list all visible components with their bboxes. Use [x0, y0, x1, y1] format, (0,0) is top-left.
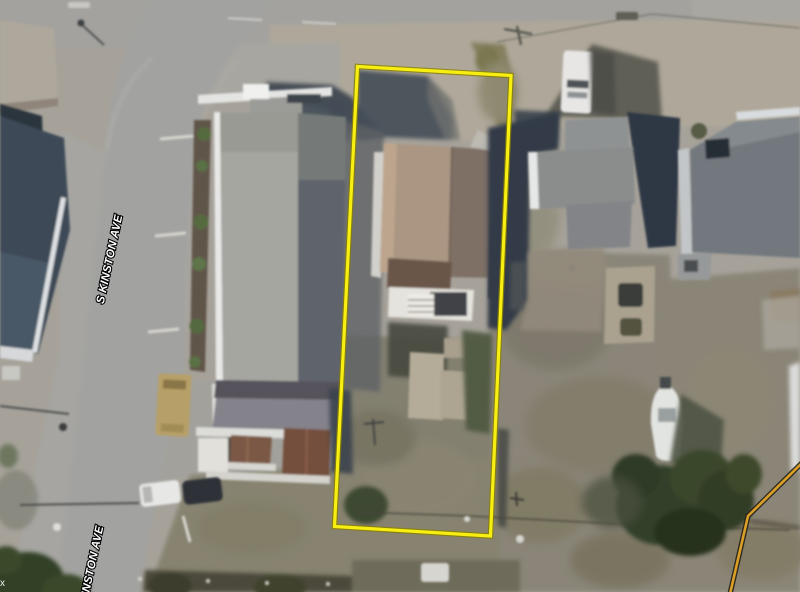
svg-text:x: x: [0, 578, 5, 589]
